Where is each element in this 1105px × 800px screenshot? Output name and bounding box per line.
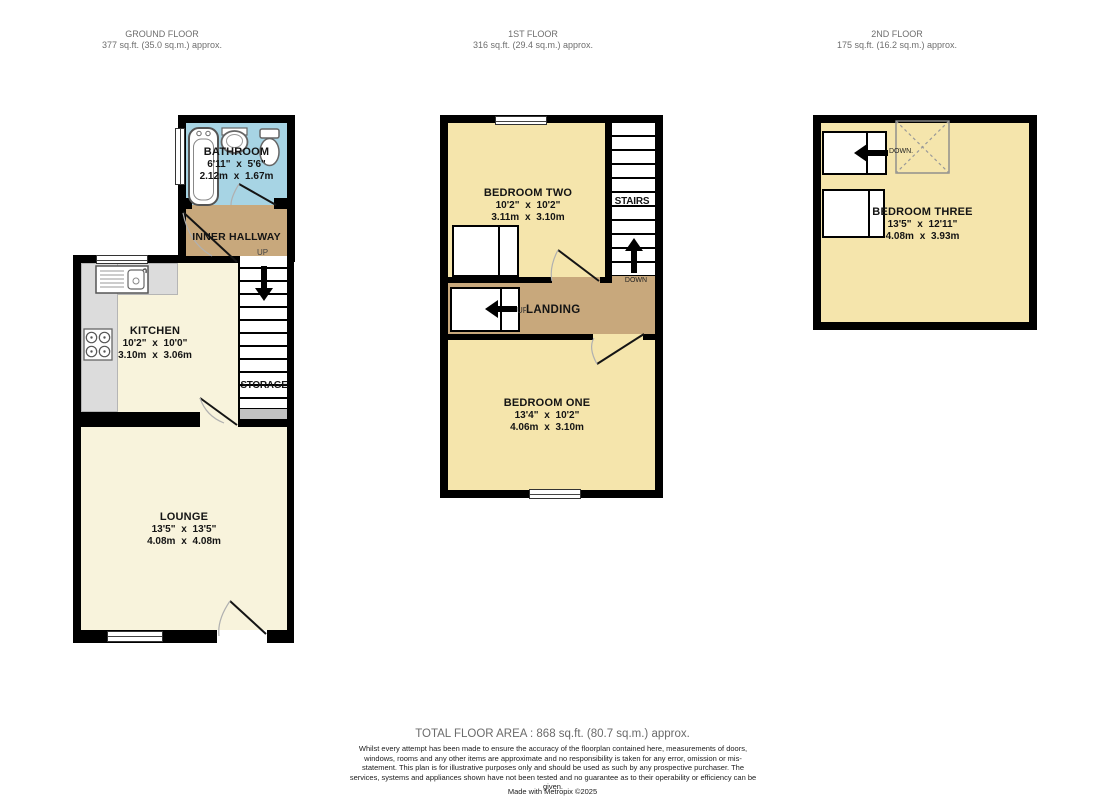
second-floor-title: 2ND FLOOR bbox=[787, 29, 1007, 40]
ground-floor-area: 377 sq.ft. (35.0 sq.m.) approx. bbox=[52, 40, 272, 51]
bedroom-three-label: BEDROOM THREE 13'5" x 12'11" 4.08m x 3.9… bbox=[852, 206, 993, 243]
stairs-label: STAIRS bbox=[609, 196, 655, 209]
bedroom-two-name: BEDROOM TWO bbox=[458, 187, 598, 200]
kitchen-dims-metric: 3.10m x 3.06m bbox=[95, 350, 215, 362]
bathroom-wall-stub-left bbox=[178, 198, 192, 209]
bathroom-window bbox=[175, 128, 185, 185]
second-floor-area: 175 sq.ft. (16.2 sq.m.) approx. bbox=[787, 40, 1007, 51]
second-floor-header: 2ND FLOOR 175 sq.ft. (16.2 sq.m.) approx… bbox=[787, 29, 1007, 51]
kitchen-lounge-doorway bbox=[200, 412, 238, 427]
first-floor-header: 1ST FLOOR 316 sq.ft. (29.4 sq.m.) approx… bbox=[423, 29, 643, 51]
floorplan-page: GROUND FLOOR 377 sq.ft. (35.0 sq.m.) app… bbox=[0, 0, 1105, 800]
storage-label: STORAGE bbox=[233, 380, 295, 393]
bathroom-label: BATHROOM 6'11" x 5'6" 2.12m x 1.67m bbox=[186, 146, 287, 183]
bedroom-one-name: BEDROOM ONE bbox=[477, 397, 617, 410]
bathroom-dims-imperial: 6'11" x 5'6" bbox=[186, 159, 287, 171]
lounge-dims-metric: 4.08m x 4.08m bbox=[114, 536, 254, 548]
first-floor-area: 316 sq.ft. (29.4 sq.m.) approx. bbox=[423, 40, 643, 51]
ground-floor-title: GROUND FLOOR bbox=[52, 29, 272, 40]
storage-strip bbox=[238, 408, 287, 419]
kitchen-label: KITCHEN 10'2" x 10'0" 3.10m x 3.06m bbox=[95, 325, 215, 362]
bedroom-one-label: BEDROOM ONE 13'4" x 10'2" 4.06m x 3.10m bbox=[477, 397, 617, 434]
landing-upper-stairs bbox=[450, 287, 520, 332]
lounge-window bbox=[107, 631, 163, 642]
up-label-landing: UP bbox=[517, 306, 526, 315]
bedroom-three-dims-metric: 4.08m x 3.93m bbox=[852, 231, 993, 243]
bedroom-three-name: BEDROOM THREE bbox=[852, 206, 993, 219]
lounge-label: LOUNGE 13'5" x 13'5" 4.08m x 4.08m bbox=[114, 511, 254, 548]
disclaimer-text: Whilst every attempt has been made to en… bbox=[347, 744, 759, 792]
bedroom-two-dims-imperial: 10'2" x 10'2" bbox=[458, 200, 598, 212]
storage-name: STORAGE bbox=[233, 380, 295, 393]
kitchen-name: KITCHEN bbox=[95, 325, 215, 338]
bedroom-one-dims-imperial: 13'4" x 10'2" bbox=[477, 410, 617, 422]
stair-divider-line bbox=[866, 131, 868, 175]
landing-label: UP LANDING bbox=[517, 302, 581, 318]
first-floor-title: 1ST FLOOR bbox=[423, 29, 643, 40]
bedroom-two-doorway bbox=[552, 277, 600, 283]
down-label-first: DOWN bbox=[617, 277, 655, 284]
kitchen-window bbox=[96, 255, 148, 264]
bedroom-two-window bbox=[495, 116, 547, 125]
bathroom-dims-metric: 2.12m x 1.67m bbox=[186, 171, 287, 183]
bathroom-name: BATHROOM bbox=[186, 146, 287, 159]
lounge-exterior-doorway bbox=[217, 630, 267, 643]
bed-divider-line bbox=[498, 225, 500, 277]
inner-hallway-label: INNER HALLWAY bbox=[186, 231, 287, 244]
up-label-ground: UP bbox=[257, 248, 268, 257]
down-label-second: DOWN. bbox=[889, 148, 913, 155]
credit-text: Made with Metropix ©2025 bbox=[0, 787, 1105, 796]
kitchen-dims-imperial: 10'2" x 10'0" bbox=[95, 338, 215, 350]
bedroom-one-window bbox=[529, 489, 581, 499]
stair-divider-line bbox=[500, 287, 502, 332]
inner-hallway-name: INNER HALLWAY bbox=[186, 231, 287, 244]
total-floor-area: TOTAL FLOOR AREA : 868 sq.ft. (80.7 sq.m… bbox=[0, 728, 1105, 740]
second-floor-stairs-upper bbox=[822, 131, 887, 175]
lounge-name: LOUNGE bbox=[114, 511, 254, 524]
bedroom-two-label: BEDROOM TWO 10'2" x 10'2" 3.11m x 3.10m bbox=[458, 187, 598, 224]
bathroom-wall-stub-right bbox=[274, 198, 295, 209]
bedroom-two-dims-metric: 3.11m x 3.10m bbox=[458, 212, 598, 224]
bedroom-one-dims-metric: 4.06m x 3.10m bbox=[477, 422, 617, 434]
bedroom-three-dims-imperial: 13'5" x 12'11" bbox=[852, 219, 993, 231]
bedroom-one-doorway bbox=[593, 334, 643, 340]
landing-name: LANDING bbox=[526, 304, 581, 316]
bed-icon bbox=[452, 225, 519, 277]
stairs-name: STAIRS bbox=[609, 196, 655, 209]
landing-floor-right bbox=[612, 276, 655, 334]
lounge-dims-imperial: 13'5" x 13'5" bbox=[114, 524, 254, 536]
ground-floor-header: GROUND FLOOR 377 sq.ft. (35.0 sq.m.) app… bbox=[52, 29, 272, 51]
